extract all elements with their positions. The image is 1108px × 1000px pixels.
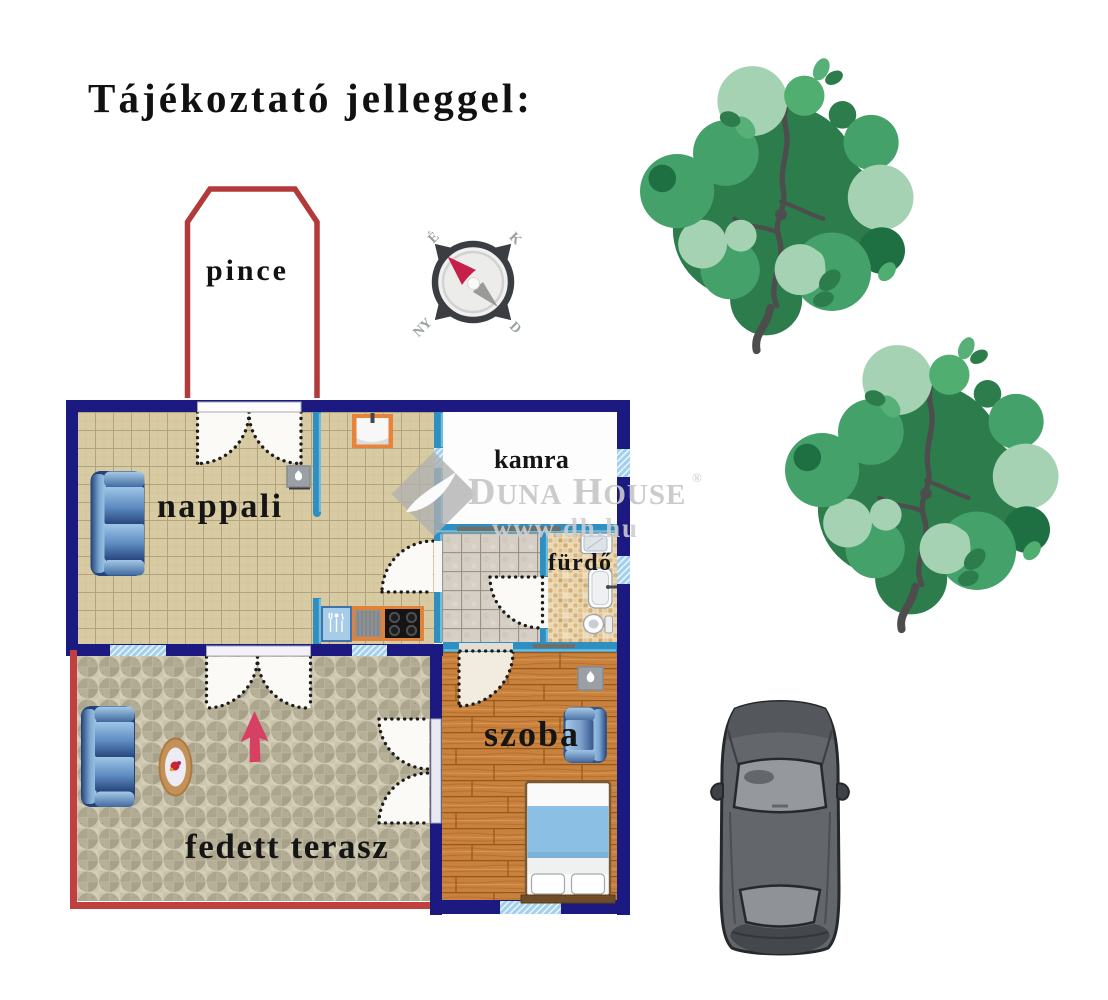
- svg-text:www.dh.hu: www.dh.hu: [492, 513, 639, 543]
- svg-text:fürdő: fürdő: [548, 550, 612, 576]
- svg-text:É: É: [424, 228, 443, 247]
- svg-text:NY: NY: [411, 316, 436, 341]
- svg-text:kamra: kamra: [494, 445, 569, 474]
- svg-text:fedett terasz: fedett terasz: [185, 827, 389, 866]
- svg-text:Tájékoztató jelleggel:: Tájékoztató jelleggel:: [88, 75, 533, 121]
- svg-text:D: D: [506, 319, 524, 337]
- svg-text:®: ®: [692, 470, 702, 485]
- svg-text:szoba: szoba: [484, 714, 580, 754]
- svg-text:nappali: nappali: [157, 488, 283, 525]
- svg-text:pince: pince: [206, 254, 289, 287]
